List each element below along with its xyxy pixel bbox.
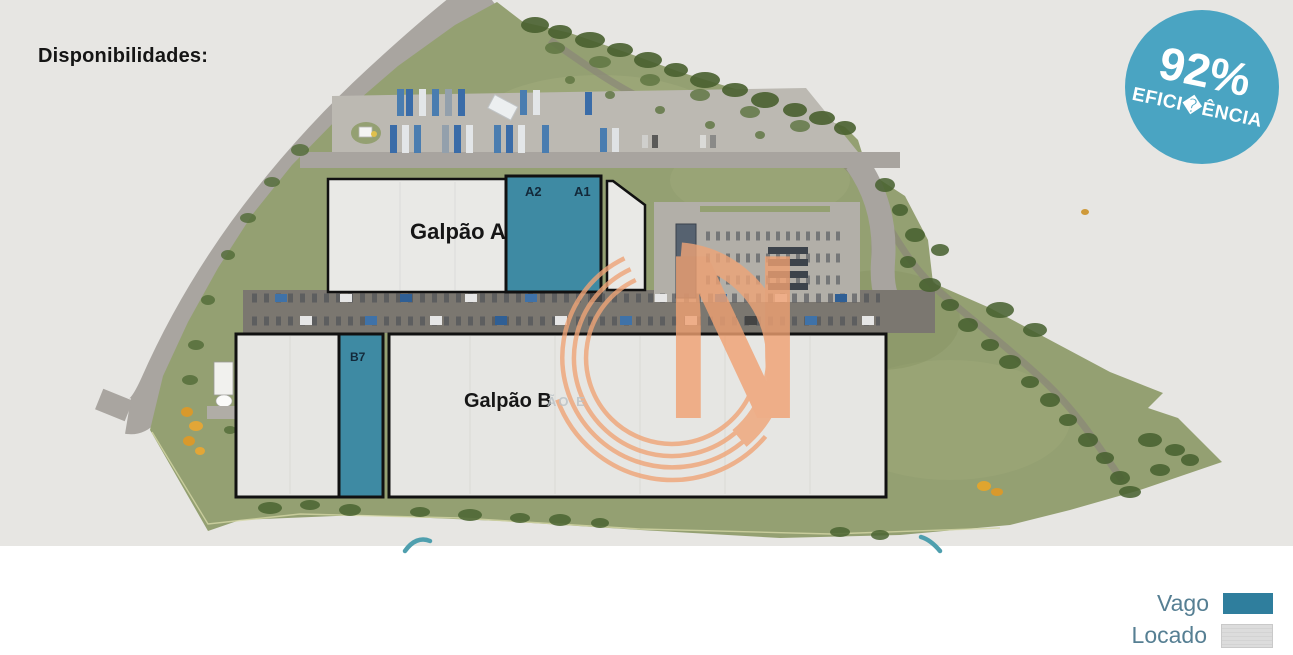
galpao-b-label: Galpão B [464, 390, 552, 413]
section-label-a2: A2 [525, 184, 542, 199]
legend-item-locado: Locado [1132, 622, 1273, 649]
legend: Vago Locado [1132, 590, 1273, 649]
efficiency-badge-content: 92% EFICI�ÊNCIA [1130, 35, 1275, 133]
legend-item-vago: Vago [1157, 590, 1273, 617]
site-map: N [0, 0, 1293, 655]
legend-swatch-locado [1221, 624, 1273, 648]
section-label-a1: A1 [574, 184, 591, 199]
gatehouse-canopy [371, 131, 377, 137]
galpao-b-building-right [389, 334, 886, 497]
watermark-text-fragment: ÃO E [547, 394, 587, 409]
galpao-a-label: Galpão A [410, 219, 506, 245]
watermark-letter: N [663, 205, 803, 468]
utility-pad [207, 406, 235, 419]
gatehouse [359, 127, 372, 137]
legend-label-vago: Vago [1157, 590, 1209, 617]
page-title: Disponibilidades: [38, 45, 208, 68]
efficiency-badge: 92% EFICI�ÊNCIA [1125, 10, 1279, 164]
water-tank [216, 395, 232, 407]
bottom-white-band [0, 546, 1293, 655]
legend-swatch-vago [1223, 593, 1273, 614]
legend-label-locado: Locado [1132, 622, 1207, 649]
availability-site-plan: N Disponibilidades: Galpão A A2 A1 Galpã… [0, 0, 1293, 655]
section-label-b7: B7 [350, 350, 365, 364]
utility-building [214, 362, 233, 395]
